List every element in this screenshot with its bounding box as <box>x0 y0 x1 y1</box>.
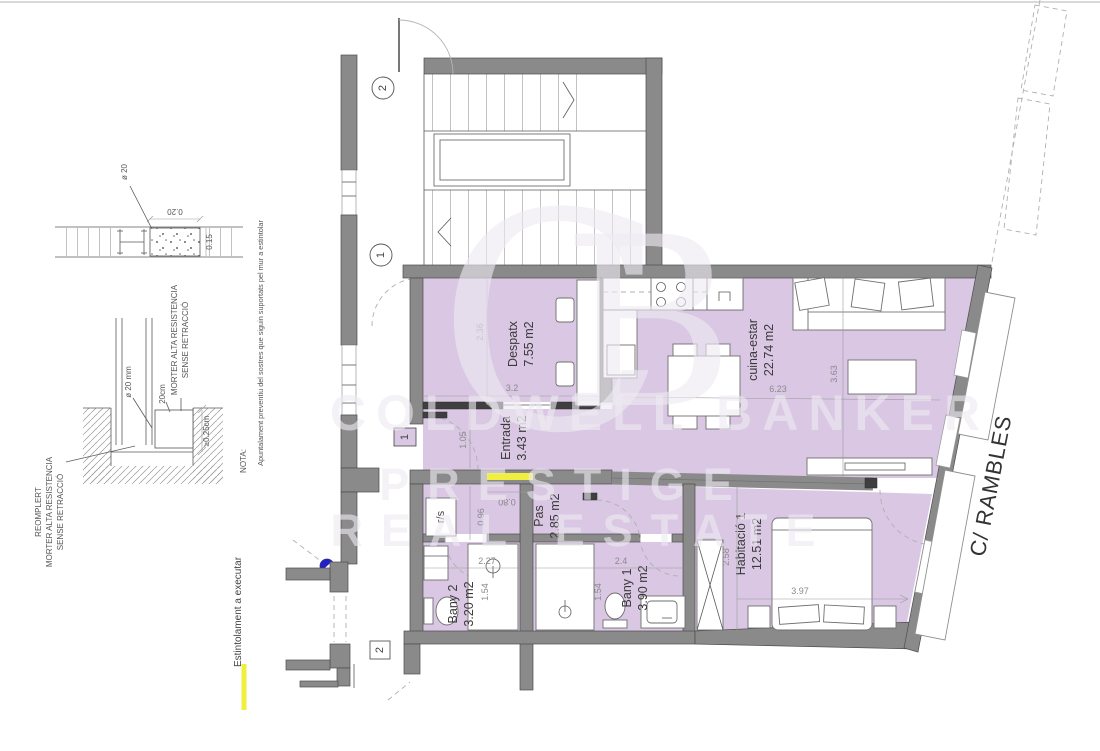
dim-bany1-h: 1.54 <box>593 583 603 601</box>
left-wall-stub <box>341 468 379 492</box>
reomplert-line3: SENSE RETRACCIÓ <box>56 474 65 550</box>
balcony-above-2 <box>1004 98 1050 235</box>
floor-plan-page: 2 1 <box>0 0 1100 751</box>
detail-pipe-section: ≥0.25cm 20cm ø 20 mm MORTER ALTA RESISTE… <box>34 284 223 567</box>
detail-wall-section: 0.20 0.15 ø 20 <box>55 163 243 257</box>
mortar-block <box>155 410 193 448</box>
area-bany1: 3.90 m2 <box>636 565 650 610</box>
area-bany2: 3.20 m2 <box>462 581 476 626</box>
detail2-morter-2: SENSE RETRACCIÓ <box>181 302 190 378</box>
facade-continuation-dashed <box>992 0 1040 262</box>
wall-bottom <box>404 631 695 644</box>
watermark-brand: COLDWELL BANKER <box>330 385 990 441</box>
reomplert-line2: MORTER ALTA RESISTENCIA <box>45 456 54 567</box>
detail2-20cm: 20cm <box>158 384 167 404</box>
detail1-dim-width: 0.20 <box>167 207 183 216</box>
legend-estintolament-label: Estintolament a executar <box>233 556 244 667</box>
window-left-1 <box>342 170 356 215</box>
i-beam-icon <box>117 229 147 255</box>
lightwell-structure <box>286 540 410 700</box>
stair-wall-top <box>424 58 662 74</box>
detail1-hatch-left <box>58 228 115 256</box>
dim-bany1-w: 2.4 <box>615 556 628 566</box>
ground-hatch-bottom <box>83 466 223 484</box>
left-wall-1 <box>341 55 357 170</box>
detail1-dim-height: 0.15 <box>205 234 214 250</box>
reomplert-line1: REOMPLERT <box>34 487 43 537</box>
floor-plan-drawing: 2 1 <box>0 0 1100 751</box>
detail2-phi-mm: ø 20 mm <box>124 366 133 398</box>
nightstand-icon <box>874 606 896 628</box>
detail2-dim-min: ≥0.25cm <box>202 415 211 446</box>
label-bany2: Bany 2 <box>446 584 460 623</box>
stair-lower-number: 1 <box>375 252 387 258</box>
watermark-realestate: REAL ESTATE <box>330 505 833 556</box>
nota-title: NOTA: <box>239 449 248 473</box>
nightstand-icon <box>748 606 770 628</box>
dim-bany2-w: 2.27 <box>478 556 496 566</box>
bany1-bathtub-icon <box>536 544 594 630</box>
balcony-above-1 <box>1021 5 1067 96</box>
detail1-phi: ø 20 <box>120 163 129 180</box>
door-marker-2: 2 <box>374 647 386 653</box>
label-cuina: cuina-estar <box>746 319 760 381</box>
label-bany1: Bany 1 <box>620 568 634 607</box>
dim-cuina-h: 3.63 <box>829 365 839 383</box>
wall-bottom-notch <box>404 644 420 674</box>
left-wall-2 <box>341 215 357 345</box>
stair-upper-number: 2 <box>377 85 389 91</box>
sideboard-icon <box>807 458 932 475</box>
bedroom-door-leaf <box>865 478 877 488</box>
detail1-concrete-block <box>150 228 200 256</box>
nota-text: Apuntalament preventiu del sostres que s… <box>256 220 265 466</box>
detail2-morter-1: MORTER ALTA RESISTENCIA <box>170 284 179 395</box>
stair-flight-upper <box>430 74 592 131</box>
sofa-icon <box>793 278 945 330</box>
dim-hab-w: 3.97 <box>791 586 809 596</box>
dim-bany2-h: 1.54 <box>480 583 490 601</box>
watermark-prestige: PRESTIGE <box>379 459 751 510</box>
area-cuina: 22.74 m2 <box>762 324 776 376</box>
